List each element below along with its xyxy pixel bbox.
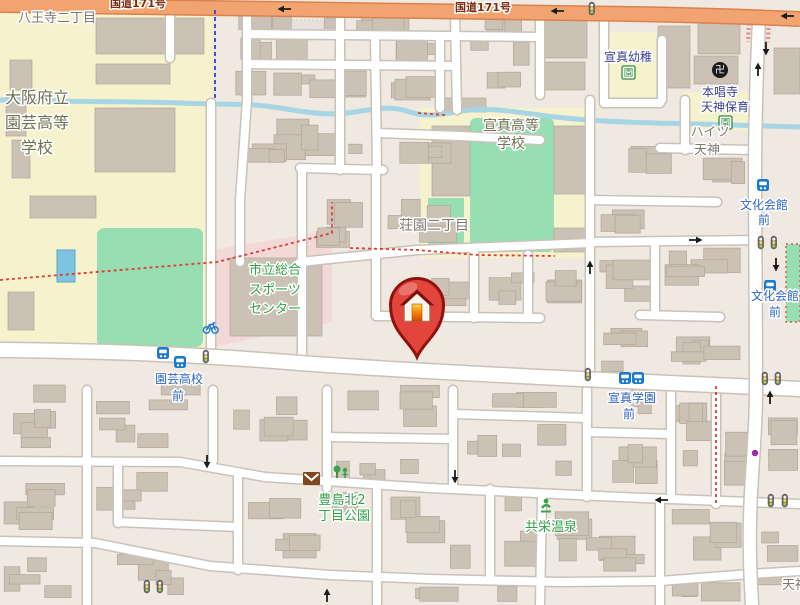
building <box>628 445 643 463</box>
building <box>28 558 47 572</box>
building <box>704 346 740 360</box>
busstop-bunkakaikan-label-1: 文化会館 <box>740 197 788 212</box>
building <box>406 516 440 532</box>
building <box>602 361 623 372</box>
engei-school-label-1: 大阪府立 <box>5 88 69 107</box>
sports-center-label-3: センター <box>249 302 301 317</box>
traffic-signal-icon <box>585 368 591 381</box>
building <box>10 575 41 585</box>
traffic-signal-icon <box>768 494 774 507</box>
building <box>604 558 636 571</box>
bus-stop-icon <box>157 347 169 359</box>
park-east <box>786 244 800 322</box>
building <box>732 162 745 184</box>
building <box>400 142 429 163</box>
heights-tenjin-label-1: ハイツ <box>691 125 730 140</box>
honshoji-label: 本唱寺 <box>702 85 738 99</box>
busstop-senshin-label-1: 宣真学園 <box>608 390 656 405</box>
traffic-signal-icon <box>589 2 595 15</box>
building <box>586 538 611 551</box>
building <box>138 434 168 448</box>
building <box>538 425 566 446</box>
building <box>270 499 301 519</box>
building <box>400 392 432 409</box>
building <box>556 461 572 475</box>
building <box>689 403 702 421</box>
senshin-hs-label-1: 宣真高等 <box>483 117 539 134</box>
toyoshima-park-label-1: 豊島北2 <box>318 493 365 508</box>
building <box>406 77 435 98</box>
building <box>318 228 340 246</box>
kyoei-onsen-label: 共栄温泉 <box>525 519 577 535</box>
traffic-signal-icon <box>203 350 209 363</box>
senshin-kindergarten-label: 宣真幼稚 <box>604 49 652 64</box>
busstop-senshin-label-2: 前 <box>623 406 635 421</box>
building <box>401 459 419 473</box>
building <box>710 522 736 542</box>
building <box>499 291 516 305</box>
building <box>613 461 634 483</box>
traffic-signal-icon <box>771 236 777 249</box>
building <box>137 473 168 492</box>
building <box>100 418 126 430</box>
tenjin-nursery-label: 天神保育 <box>701 99 749 114</box>
district-label-hachioji: 八王寺二丁目 <box>18 11 96 26</box>
building <box>701 583 740 601</box>
building <box>471 41 488 50</box>
building <box>401 501 416 518</box>
building <box>493 394 526 407</box>
building <box>450 545 470 568</box>
busstop-engei-label-2: 前 <box>172 388 184 403</box>
building <box>646 154 671 174</box>
bus-stop-icon <box>632 372 644 384</box>
building <box>762 532 779 543</box>
heights-tenjin-label-2: 天神 <box>694 143 720 158</box>
traffic-signal-icon <box>144 580 150 593</box>
bus-stop-icon <box>174 356 186 368</box>
building <box>420 587 459 601</box>
building <box>19 512 52 529</box>
building <box>21 437 50 447</box>
map-viewport[interactable]: 卍 園 園 <box>0 0 800 605</box>
bus-stop-icon <box>619 372 631 384</box>
school-field-west <box>97 228 203 347</box>
building <box>277 39 308 60</box>
building <box>276 397 297 415</box>
building <box>629 149 647 173</box>
building <box>27 490 55 507</box>
building <box>290 535 321 551</box>
building <box>683 451 697 466</box>
building <box>123 490 142 501</box>
building <box>686 421 711 441</box>
building <box>397 41 428 62</box>
building <box>505 495 522 511</box>
building <box>498 586 517 601</box>
building <box>502 444 520 456</box>
temple-icon: 卍 <box>712 62 728 78</box>
building <box>769 449 798 470</box>
traffic-signal-icon <box>775 372 781 385</box>
building <box>348 391 379 410</box>
route-171-label: 国道171号 <box>455 0 511 14</box>
map-canvas[interactable]: 卍 園 園 <box>0 0 800 605</box>
swimming-pool <box>57 250 75 282</box>
building <box>269 149 284 162</box>
route-171-label: 国道171号 <box>110 0 166 10</box>
building <box>771 420 797 444</box>
building <box>264 417 293 436</box>
building <box>45 586 71 598</box>
building <box>523 392 556 407</box>
building <box>672 510 709 525</box>
building <box>478 435 497 456</box>
bus-stop-icon <box>757 179 769 191</box>
senshin-hs-label-2: 学校 <box>497 135 525 152</box>
building <box>274 73 302 95</box>
busstop-bunkakaikan-label-2: 前 <box>758 212 770 227</box>
toyoshima-park-label-2: 丁目公園 <box>318 509 370 524</box>
building <box>666 266 705 276</box>
building <box>34 410 50 428</box>
engei-school-label-2: 園芸高等 <box>5 113 69 132</box>
busstop-engei-label-1: 園芸高校 <box>155 371 203 386</box>
traffic-signal-icon <box>762 372 768 385</box>
building <box>234 410 250 429</box>
building <box>767 546 798 562</box>
building <box>671 352 706 362</box>
building <box>559 539 576 561</box>
sports-center-label-1: 市立総合 <box>249 262 301 278</box>
traffic-signal-icon <box>157 580 163 593</box>
engei-school-label-3: 学校 <box>21 138 53 157</box>
building <box>604 333 636 345</box>
post-office-icon <box>303 472 320 485</box>
building <box>335 202 363 227</box>
traffic-signal-icon <box>758 236 764 249</box>
building <box>97 401 130 414</box>
busstop-bunkakaikan2-label-2: 前 <box>769 304 781 319</box>
building <box>349 144 362 153</box>
svg-text:卍: 卍 <box>715 64 725 76</box>
building <box>97 487 115 510</box>
building <box>34 385 65 402</box>
building <box>615 215 640 233</box>
poi-dot <box>752 450 758 456</box>
building <box>360 464 376 475</box>
building <box>301 125 318 150</box>
building <box>613 260 650 280</box>
sports-center-label-2: スポーツ <box>249 283 301 298</box>
building <box>513 42 529 65</box>
svg-text:園: 園 <box>624 68 634 79</box>
traffic-signal-icon <box>782 494 788 507</box>
kindergarten-icon: 園 <box>622 66 635 79</box>
building <box>555 271 576 287</box>
busstop-bunkakaikan2-label-1: 文化会館 <box>751 288 799 303</box>
tenjin-partial-label: 天神 <box>782 578 800 593</box>
district-label-shoen: 荘園二丁目 <box>399 218 469 234</box>
building <box>498 72 521 87</box>
